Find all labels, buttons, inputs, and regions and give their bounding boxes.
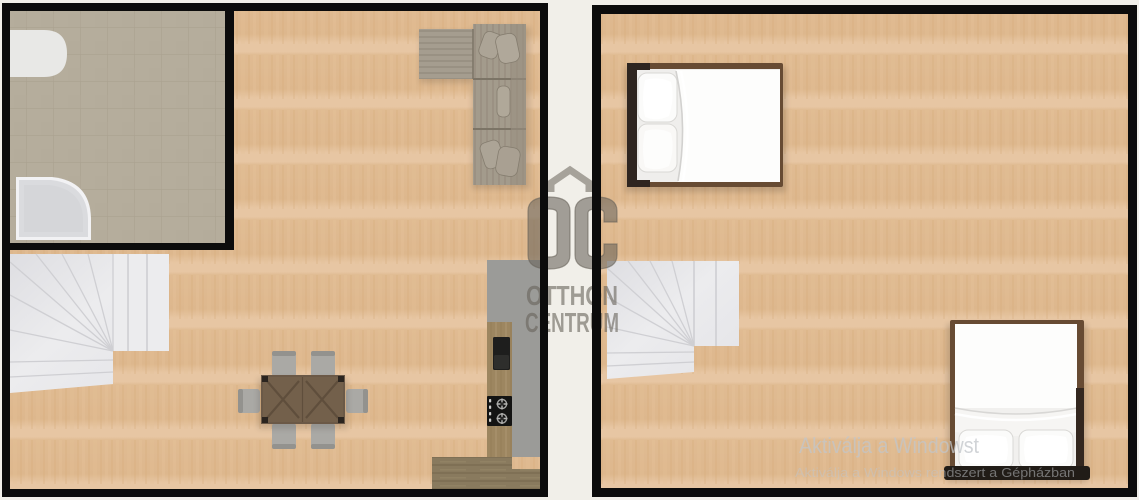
svg-text:CENTRUM: CENTRUM	[525, 307, 619, 338]
svg-text:Aktiválja a Windowst: Aktiválja a Windowst	[799, 433, 979, 458]
svg-text:Aktiválja a Windows rendszert: Aktiválja a Windows rendszert a Gépházba…	[795, 465, 1075, 480]
